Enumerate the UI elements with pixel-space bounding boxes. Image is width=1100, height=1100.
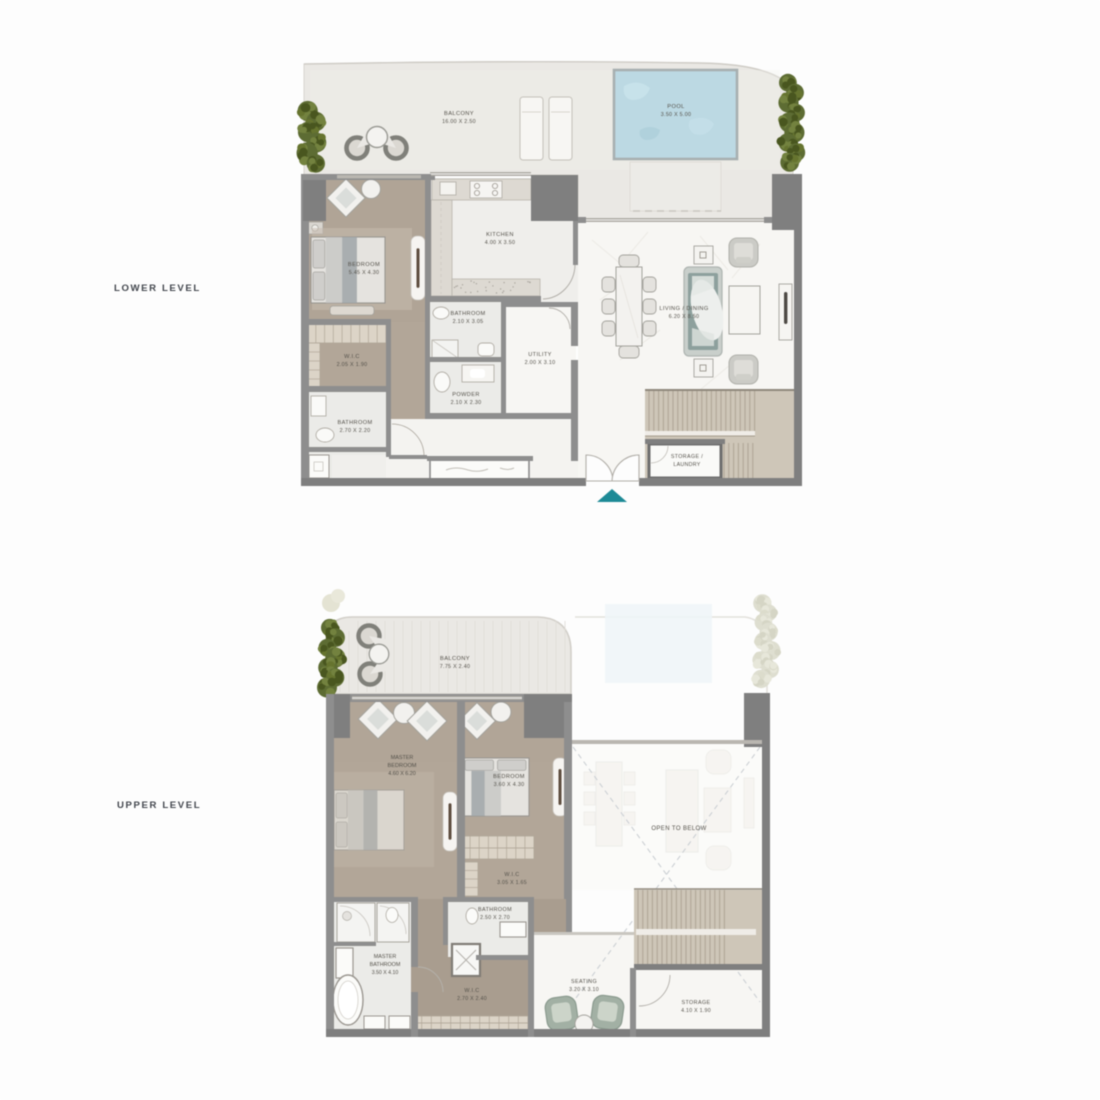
svg-text:MASTER: MASTER [374,954,397,960]
svg-text:2.10 X 3.05: 2.10 X 3.05 [453,319,484,325]
svg-text:LOWER LEVEL: LOWER LEVEL [114,283,201,294]
svg-text:BATHROOM: BATHROOM [450,311,485,317]
svg-text:BATHROOM: BATHROOM [337,420,372,426]
svg-text:2.70 X 2.20: 2.70 X 2.20 [340,428,371,434]
svg-text:3.50 X 4.10: 3.50 X 4.10 [372,970,399,976]
svg-text:POOL: POOL [667,104,684,110]
svg-text:3.60 X 4.30: 3.60 X 4.30 [494,782,525,788]
svg-text:BEDROOM: BEDROOM [348,262,380,268]
svg-text:UTILITY: UTILITY [528,352,552,358]
svg-text:BATHROOM: BATHROOM [478,907,512,913]
svg-text:LIVING / DINING: LIVING / DINING [659,306,708,312]
svg-text:POWDER: POWDER [452,392,480,398]
svg-text:BATHROOM: BATHROOM [370,962,401,968]
svg-text:STORAGE /: STORAGE / [671,454,703,460]
svg-text:2.00 X 3.10: 2.00 X 3.10 [525,360,556,366]
svg-text:OPEN TO BELOW: OPEN TO BELOW [651,826,706,832]
svg-text:4.60 X 6.20: 4.60 X 6.20 [388,771,416,777]
svg-text:6.20 X 8.50: 6.20 X 8.50 [669,314,699,320]
svg-text:SEATING: SEATING [571,979,597,985]
svg-text:W.I.C: W.I.C [344,354,360,360]
svg-text:3.50 X 5.00: 3.50 X 5.00 [661,112,691,118]
svg-text:MASTER: MASTER [391,755,414,761]
svg-text:STORAGE: STORAGE [681,1000,710,1006]
svg-text:4.10 X 1.90: 4.10 X 1.90 [681,1008,711,1014]
svg-text:3.20 X 3.10: 3.20 X 3.10 [569,987,599,993]
svg-text:2.70 X 2.40: 2.70 X 2.40 [457,996,487,1002]
svg-text:LAUNDRY: LAUNDRY [673,462,700,468]
svg-text:BEDROOM: BEDROOM [388,763,417,769]
svg-text:BEDROOM: BEDROOM [493,774,525,780]
svg-text:BALCONY: BALCONY [440,656,470,662]
svg-text:W.I.C: W.I.C [504,872,519,878]
svg-text:4.00 X 3.50: 4.00 X 3.50 [485,240,515,246]
svg-text:W.I.C: W.I.C [464,988,479,994]
svg-text:2.10 X 2.30: 2.10 X 2.30 [451,400,482,406]
svg-text:UPPER LEVEL: UPPER LEVEL [117,800,201,811]
svg-text:7.75 X 2.40: 7.75 X 2.40 [440,664,470,670]
svg-text:16.00 X 2.50: 16.00 X 2.50 [442,119,476,125]
svg-text:KITCHEN: KITCHEN [486,232,514,238]
svg-text:2.05 X 1.90: 2.05 X 1.90 [337,362,368,368]
svg-text:3.05 X 1.65: 3.05 X 1.65 [497,880,527,886]
svg-text:5.45 X 4.30: 5.45 X 4.30 [349,270,379,276]
svg-text:BALCONY: BALCONY [444,111,474,117]
svg-text:2.50 X 2.70: 2.50 X 2.70 [480,915,510,921]
